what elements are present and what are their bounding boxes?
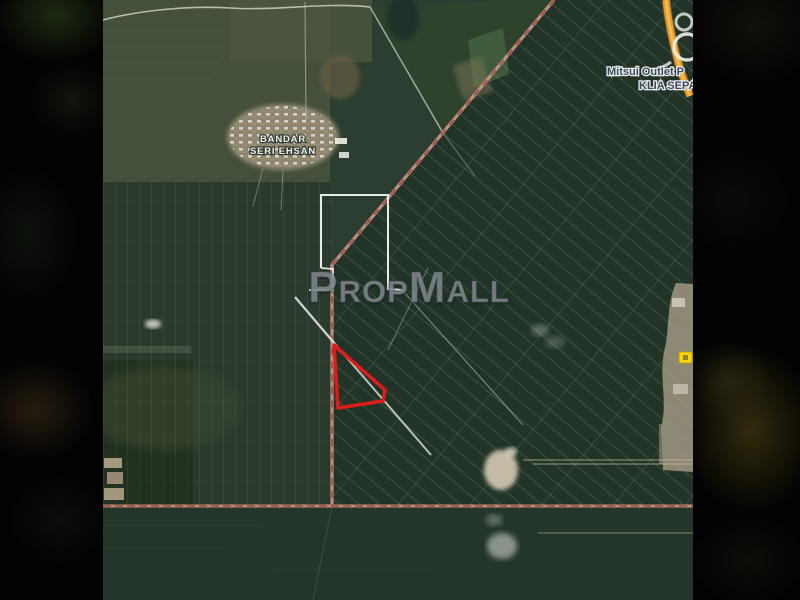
satellite-image: BANDAR SERI EHSAN Mitsui Outlet P KLIA S… <box>103 0 693 600</box>
satellite-map-photo[interactable]: BANDAR SERI EHSAN Mitsui Outlet P KLIA S… <box>103 0 693 600</box>
listing-photo-frame: BANDAR SERI EHSAN Mitsui Outlet P KLIA S… <box>0 0 800 600</box>
road-shield-badge <box>679 352 692 363</box>
photo-vignette-left <box>0 0 103 600</box>
photo-vignette-right <box>693 0 800 600</box>
farm-buildings-cluster <box>104 458 124 500</box>
cloud-low <box>487 533 517 559</box>
poi-label-line2: KLIA SEPAN <box>639 80 693 92</box>
poi-label-line1: Mitsui Outlet P <box>607 66 684 78</box>
sand-clearing <box>505 447 517 457</box>
town-label-line2: SERI EHSAN <box>250 146 316 157</box>
cloud-low <box>486 514 502 526</box>
cloud-faint <box>545 336 565 348</box>
cloud-faint <box>531 324 549 336</box>
town-label-line1: BANDAR <box>260 134 306 145</box>
cloud-small <box>145 320 161 329</box>
